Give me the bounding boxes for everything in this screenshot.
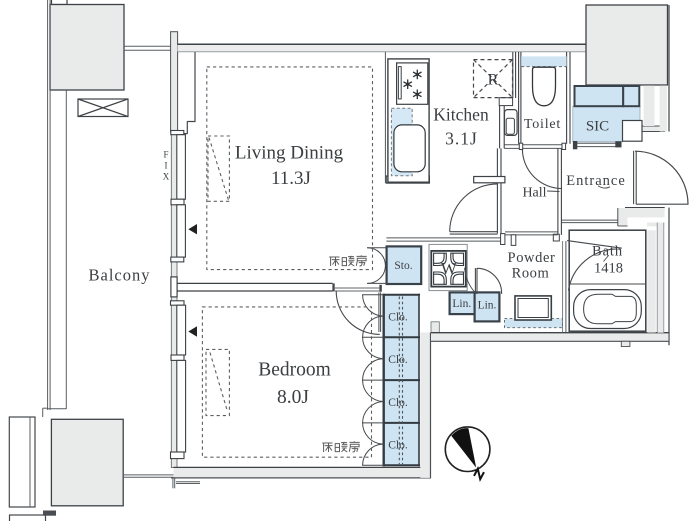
svg-text:Room: Room xyxy=(512,266,550,282)
svg-text:Entrance: Entrance xyxy=(566,173,626,189)
svg-text:SIC: SIC xyxy=(586,119,609,135)
svg-text:8.0J: 8.0J xyxy=(277,387,309,408)
svg-text:F: F xyxy=(163,150,168,160)
svg-text:Kitchen: Kitchen xyxy=(433,105,489,125)
svg-text:Living Dining: Living Dining xyxy=(235,143,344,164)
svg-text:X: X xyxy=(163,172,170,182)
svg-text:Clo.: Clo. xyxy=(388,397,408,409)
svg-text:Clo.: Clo. xyxy=(388,312,408,324)
svg-text:Bedroom: Bedroom xyxy=(258,360,331,381)
svg-text:Sto.: Sto. xyxy=(394,260,412,272)
svg-text:1418: 1418 xyxy=(594,261,623,277)
svg-text:3.1J: 3.1J xyxy=(445,129,478,149)
svg-text:Powder: Powder xyxy=(508,250,556,266)
svg-text:Lin.: Lin. xyxy=(478,300,497,312)
svg-text:I: I xyxy=(165,161,168,171)
svg-text:Lin.: Lin. xyxy=(452,298,471,310)
svg-text:R: R xyxy=(488,72,499,89)
svg-text:W: W xyxy=(441,259,458,278)
svg-text:Hall: Hall xyxy=(522,186,546,201)
svg-text:11.3J: 11.3J xyxy=(271,168,311,189)
svg-text:Clo.: Clo. xyxy=(388,354,408,366)
svg-text:Bath: Bath xyxy=(592,244,623,260)
svg-text:Clo.: Clo. xyxy=(388,440,408,452)
svg-text:Toilet: Toilet xyxy=(524,117,561,132)
svg-text:Balcony: Balcony xyxy=(89,266,151,285)
